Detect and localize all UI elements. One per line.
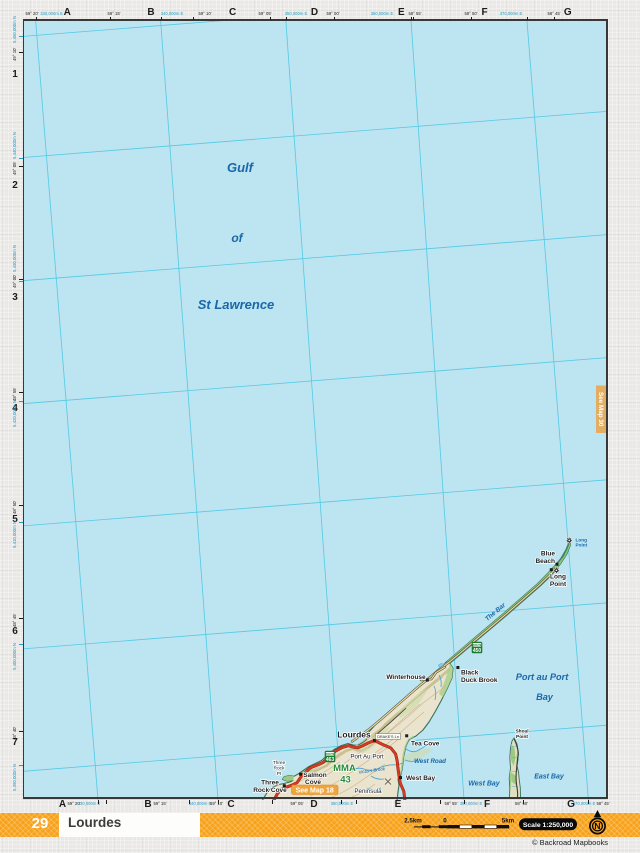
svg-text:Black: Black — [461, 670, 479, 677]
svg-text:West Road: West Road — [414, 758, 446, 765]
svg-text:Point: Point — [576, 543, 588, 548]
svg-text:Rock Cove: Rock Cove — [253, 787, 287, 794]
svg-text:43: 43 — [340, 775, 351, 786]
svg-text:Bay: Bay — [536, 692, 554, 702]
svg-text:N: N — [594, 821, 600, 831]
svg-text:Beach: Beach — [535, 558, 555, 565]
svg-text:See Map 18: See Map 18 — [296, 788, 334, 795]
svg-text:Three: Three — [261, 780, 279, 787]
svg-text:Peninsula: Peninsula — [354, 788, 382, 795]
svg-text:ROUTE: ROUTE — [325, 752, 335, 756]
svg-text:Rock: Rock — [274, 766, 286, 772]
svg-text:450: 450 — [473, 648, 482, 654]
svg-text:0: 0 — [443, 818, 447, 825]
svg-text:Point: Point — [516, 734, 528, 740]
svg-text:Tea Cove: Tea Cove — [411, 741, 440, 748]
svg-text:West Bay: West Bay — [468, 781, 500, 788]
svg-text:Pt: Pt — [277, 771, 282, 777]
svg-text:ROUTE: ROUTE — [472, 643, 482, 647]
svg-text:Gulf: Gulf — [227, 160, 255, 175]
svg-text:Port au Port: Port au Port — [516, 672, 570, 682]
svg-text:2.5km: 2.5km — [404, 818, 422, 825]
svg-text:of: of — [231, 231, 243, 245]
svg-text:MMA: MMA — [333, 763, 356, 774]
svg-text:See Map 30: See Map 30 — [597, 392, 604, 427]
svg-text:Lourdes: Lourdes — [337, 730, 371, 740]
svg-text:Port Au Port: Port Au Port — [350, 754, 384, 761]
svg-text:Three: Three — [273, 760, 286, 766]
svg-text:Shoal: Shoal — [515, 729, 528, 735]
svg-text:Scale 1:250,000: Scale 1:250,000 — [523, 822, 573, 829]
svg-text:St Lawrence: St Lawrence — [198, 297, 275, 312]
svg-text:Winterhouse: Winterhouse — [386, 674, 426, 681]
svg-text:5km: 5km — [502, 818, 515, 825]
svg-text:DRAKE'S Ln: DRAKE'S Ln — [377, 735, 399, 739]
svg-text:Duck Brook: Duck Brook — [461, 677, 498, 684]
svg-text:Blue: Blue — [541, 551, 555, 558]
svg-text:Point: Point — [550, 581, 567, 588]
svg-text:Long: Long — [550, 574, 566, 581]
svg-text:West Bay: West Bay — [406, 775, 436, 782]
svg-text:East Bay: East Bay — [534, 774, 565, 781]
